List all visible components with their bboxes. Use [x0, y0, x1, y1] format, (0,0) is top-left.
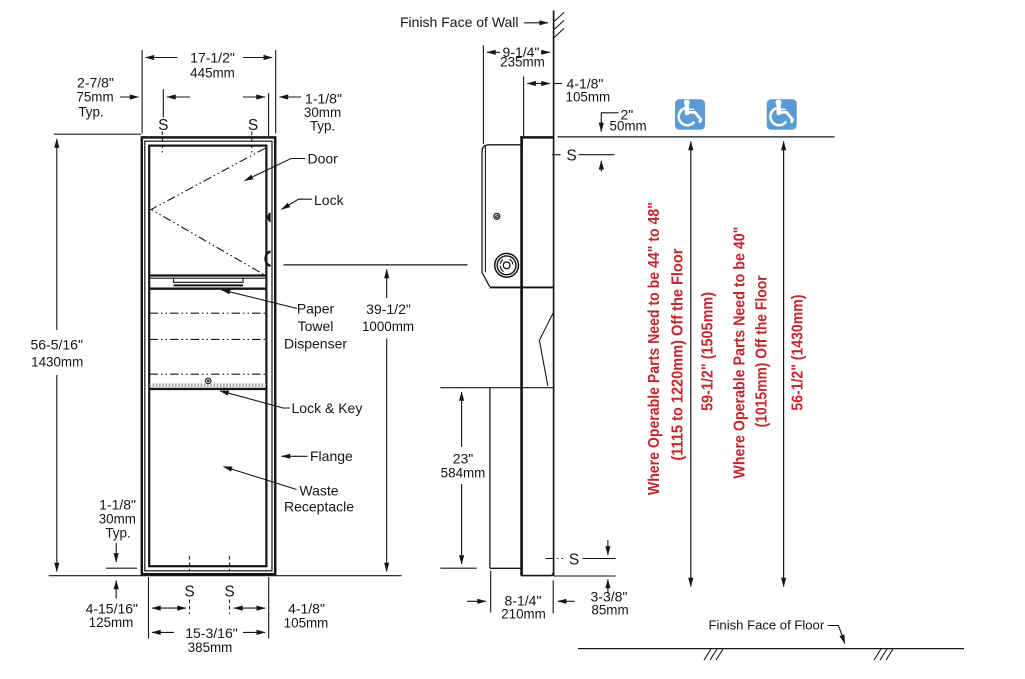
svg-text:S: S — [566, 148, 576, 165]
svg-text:S: S — [569, 552, 579, 569]
svg-text:Where Operable Parts Need to b: Where Operable Parts Need to be 40" — [732, 227, 749, 479]
svg-text:Typ.: Typ. — [105, 526, 130, 541]
svg-text:Flange: Flange — [310, 448, 353, 464]
svg-text:56-5/16": 56-5/16" — [30, 337, 82, 353]
svg-text:S: S — [184, 584, 194, 601]
svg-text:Where Operable Parts Need to b: Where Operable Parts Need to be 44" to 4… — [646, 202, 663, 495]
svg-text:Lock: Lock — [314, 192, 345, 208]
svg-text:50mm: 50mm — [610, 119, 647, 134]
svg-text:Door: Door — [308, 151, 339, 167]
svg-text:Dispenser: Dispenser — [284, 336, 347, 352]
svg-text:Typ.: Typ. — [78, 105, 103, 120]
svg-text:2-7/8": 2-7/8" — [77, 75, 114, 91]
svg-text:210mm: 210mm — [501, 607, 546, 622]
svg-text:Receptacle: Receptacle — [284, 499, 354, 515]
svg-text:1-1/8": 1-1/8" — [99, 497, 136, 513]
svg-text:385mm: 385mm — [188, 640, 233, 655]
svg-text:S: S — [248, 117, 258, 134]
svg-text:Finish Face of Floor: Finish Face of Floor — [709, 618, 825, 633]
svg-text:Paper: Paper — [297, 301, 335, 317]
svg-text:1000mm: 1000mm — [362, 319, 414, 334]
svg-text:4-1/8": 4-1/8" — [288, 601, 325, 617]
svg-text:Towel: Towel — [298, 318, 334, 334]
svg-text:30mm: 30mm — [99, 512, 136, 527]
svg-text:125mm: 125mm — [89, 615, 134, 630]
svg-text:1430mm: 1430mm — [31, 355, 83, 370]
svg-text:75mm: 75mm — [76, 90, 113, 105]
svg-text:Lock & Key: Lock & Key — [292, 400, 363, 416]
svg-text:Typ.: Typ. — [310, 119, 335, 134]
svg-text:S: S — [224, 584, 234, 601]
svg-text:23": 23" — [453, 451, 474, 467]
svg-text:56-1/2" (1430mm): 56-1/2" (1430mm) — [790, 295, 807, 411]
svg-text:584mm: 584mm — [441, 466, 486, 481]
svg-text:Finish Face of Wall: Finish Face of Wall — [400, 14, 519, 30]
svg-text:S: S — [158, 117, 168, 134]
svg-text:235mm: 235mm — [500, 55, 545, 70]
svg-text:15-3/16": 15-3/16" — [185, 625, 237, 641]
svg-text:59-1/2" (1505mm): 59-1/2" (1505mm) — [700, 292, 717, 411]
svg-text:Waste: Waste — [299, 483, 338, 499]
svg-text:39-1/2": 39-1/2" — [366, 301, 411, 317]
svg-text:445mm: 445mm — [190, 66, 235, 81]
svg-text:85mm: 85mm — [591, 603, 628, 618]
svg-text:105mm: 105mm — [284, 616, 329, 631]
svg-text:17-1/2": 17-1/2" — [190, 50, 235, 66]
svg-text:(1015mm) Off the Floor: (1015mm) Off the Floor — [753, 275, 770, 427]
svg-text:(1115 to 1220mm) Off the Floor: (1115 to 1220mm) Off the Floor — [670, 249, 687, 461]
svg-text:105mm: 105mm — [566, 90, 611, 105]
